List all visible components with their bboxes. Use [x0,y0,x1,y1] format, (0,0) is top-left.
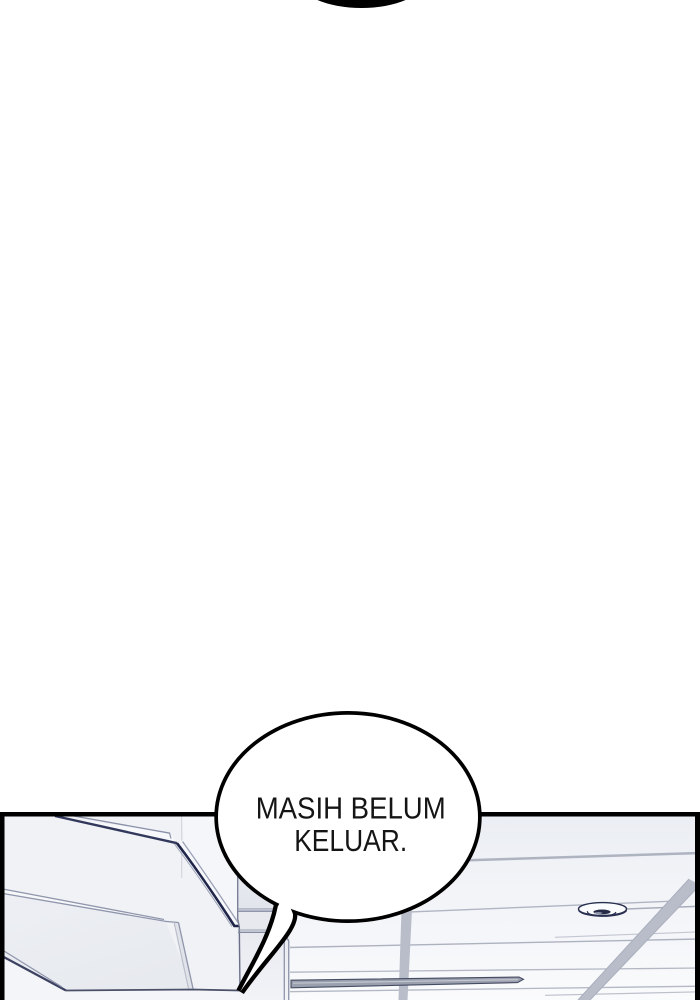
svg-text:MASIH BELUM: MASIH BELUM [256,791,446,826]
svg-text:KELUAR.: KELUAR. [294,823,407,858]
